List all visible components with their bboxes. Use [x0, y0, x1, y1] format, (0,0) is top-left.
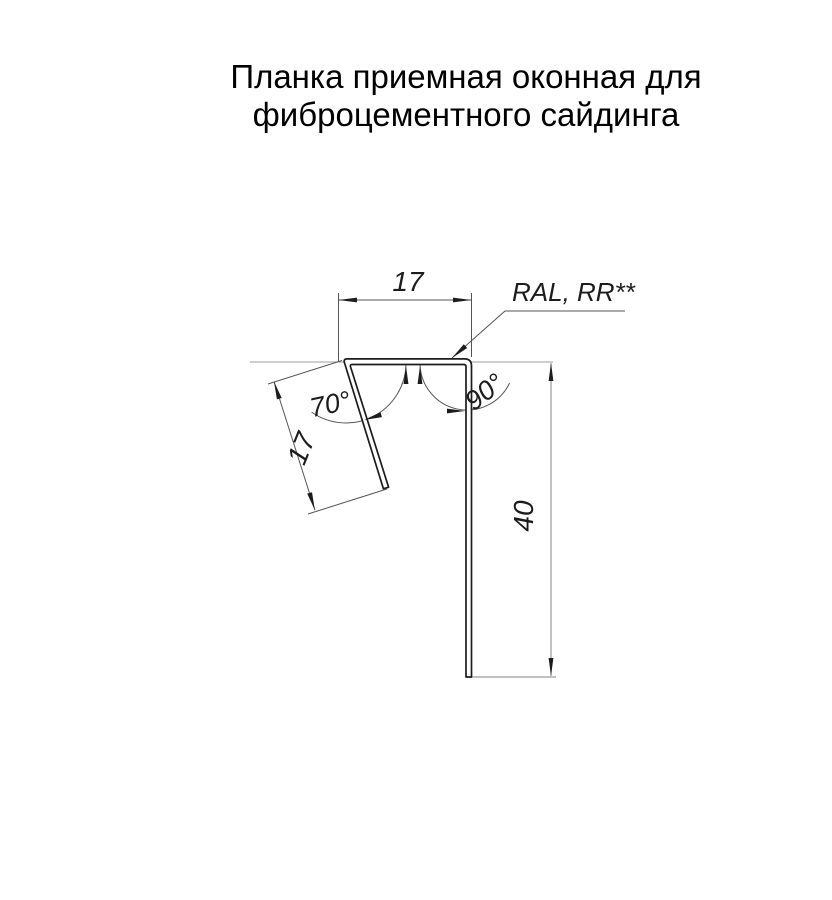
- dimension-arrow-up-icon: [549, 363, 554, 381]
- leader-line-coating: [452, 311, 625, 358]
- coating-label: RAL, RR**: [512, 277, 636, 307]
- dim-flange-length-label: 17: [281, 427, 322, 469]
- dimension-arrow-left-icon: [339, 298, 358, 303]
- profile-drawing: 17 40 17 70° 90° RAL, RR**: [0, 0, 832, 900]
- extension-line-flange-bottom: [308, 489, 387, 514]
- angle-90-arrow-leg-icon: [447, 409, 465, 414]
- dimension-arrow-right-icon: [453, 298, 472, 303]
- dim-top-width-label: 17: [392, 266, 425, 297]
- profile-outline: [344, 359, 471, 677]
- dim-height-label: 40: [508, 500, 539, 532]
- technical-drawing-page: Планка приемная оконная для фиброцементн…: [0, 0, 832, 900]
- dimension-arrow-down-icon: [549, 658, 554, 676]
- angle-flange-label: 70°: [307, 385, 353, 423]
- dimension-arrow-flange-bottom-icon: [307, 492, 315, 510]
- leader-arrow-icon: [452, 344, 467, 358]
- extension-line-flange-top: [268, 361, 342, 385]
- dimension-arrow-flange-top-icon: [274, 382, 282, 400]
